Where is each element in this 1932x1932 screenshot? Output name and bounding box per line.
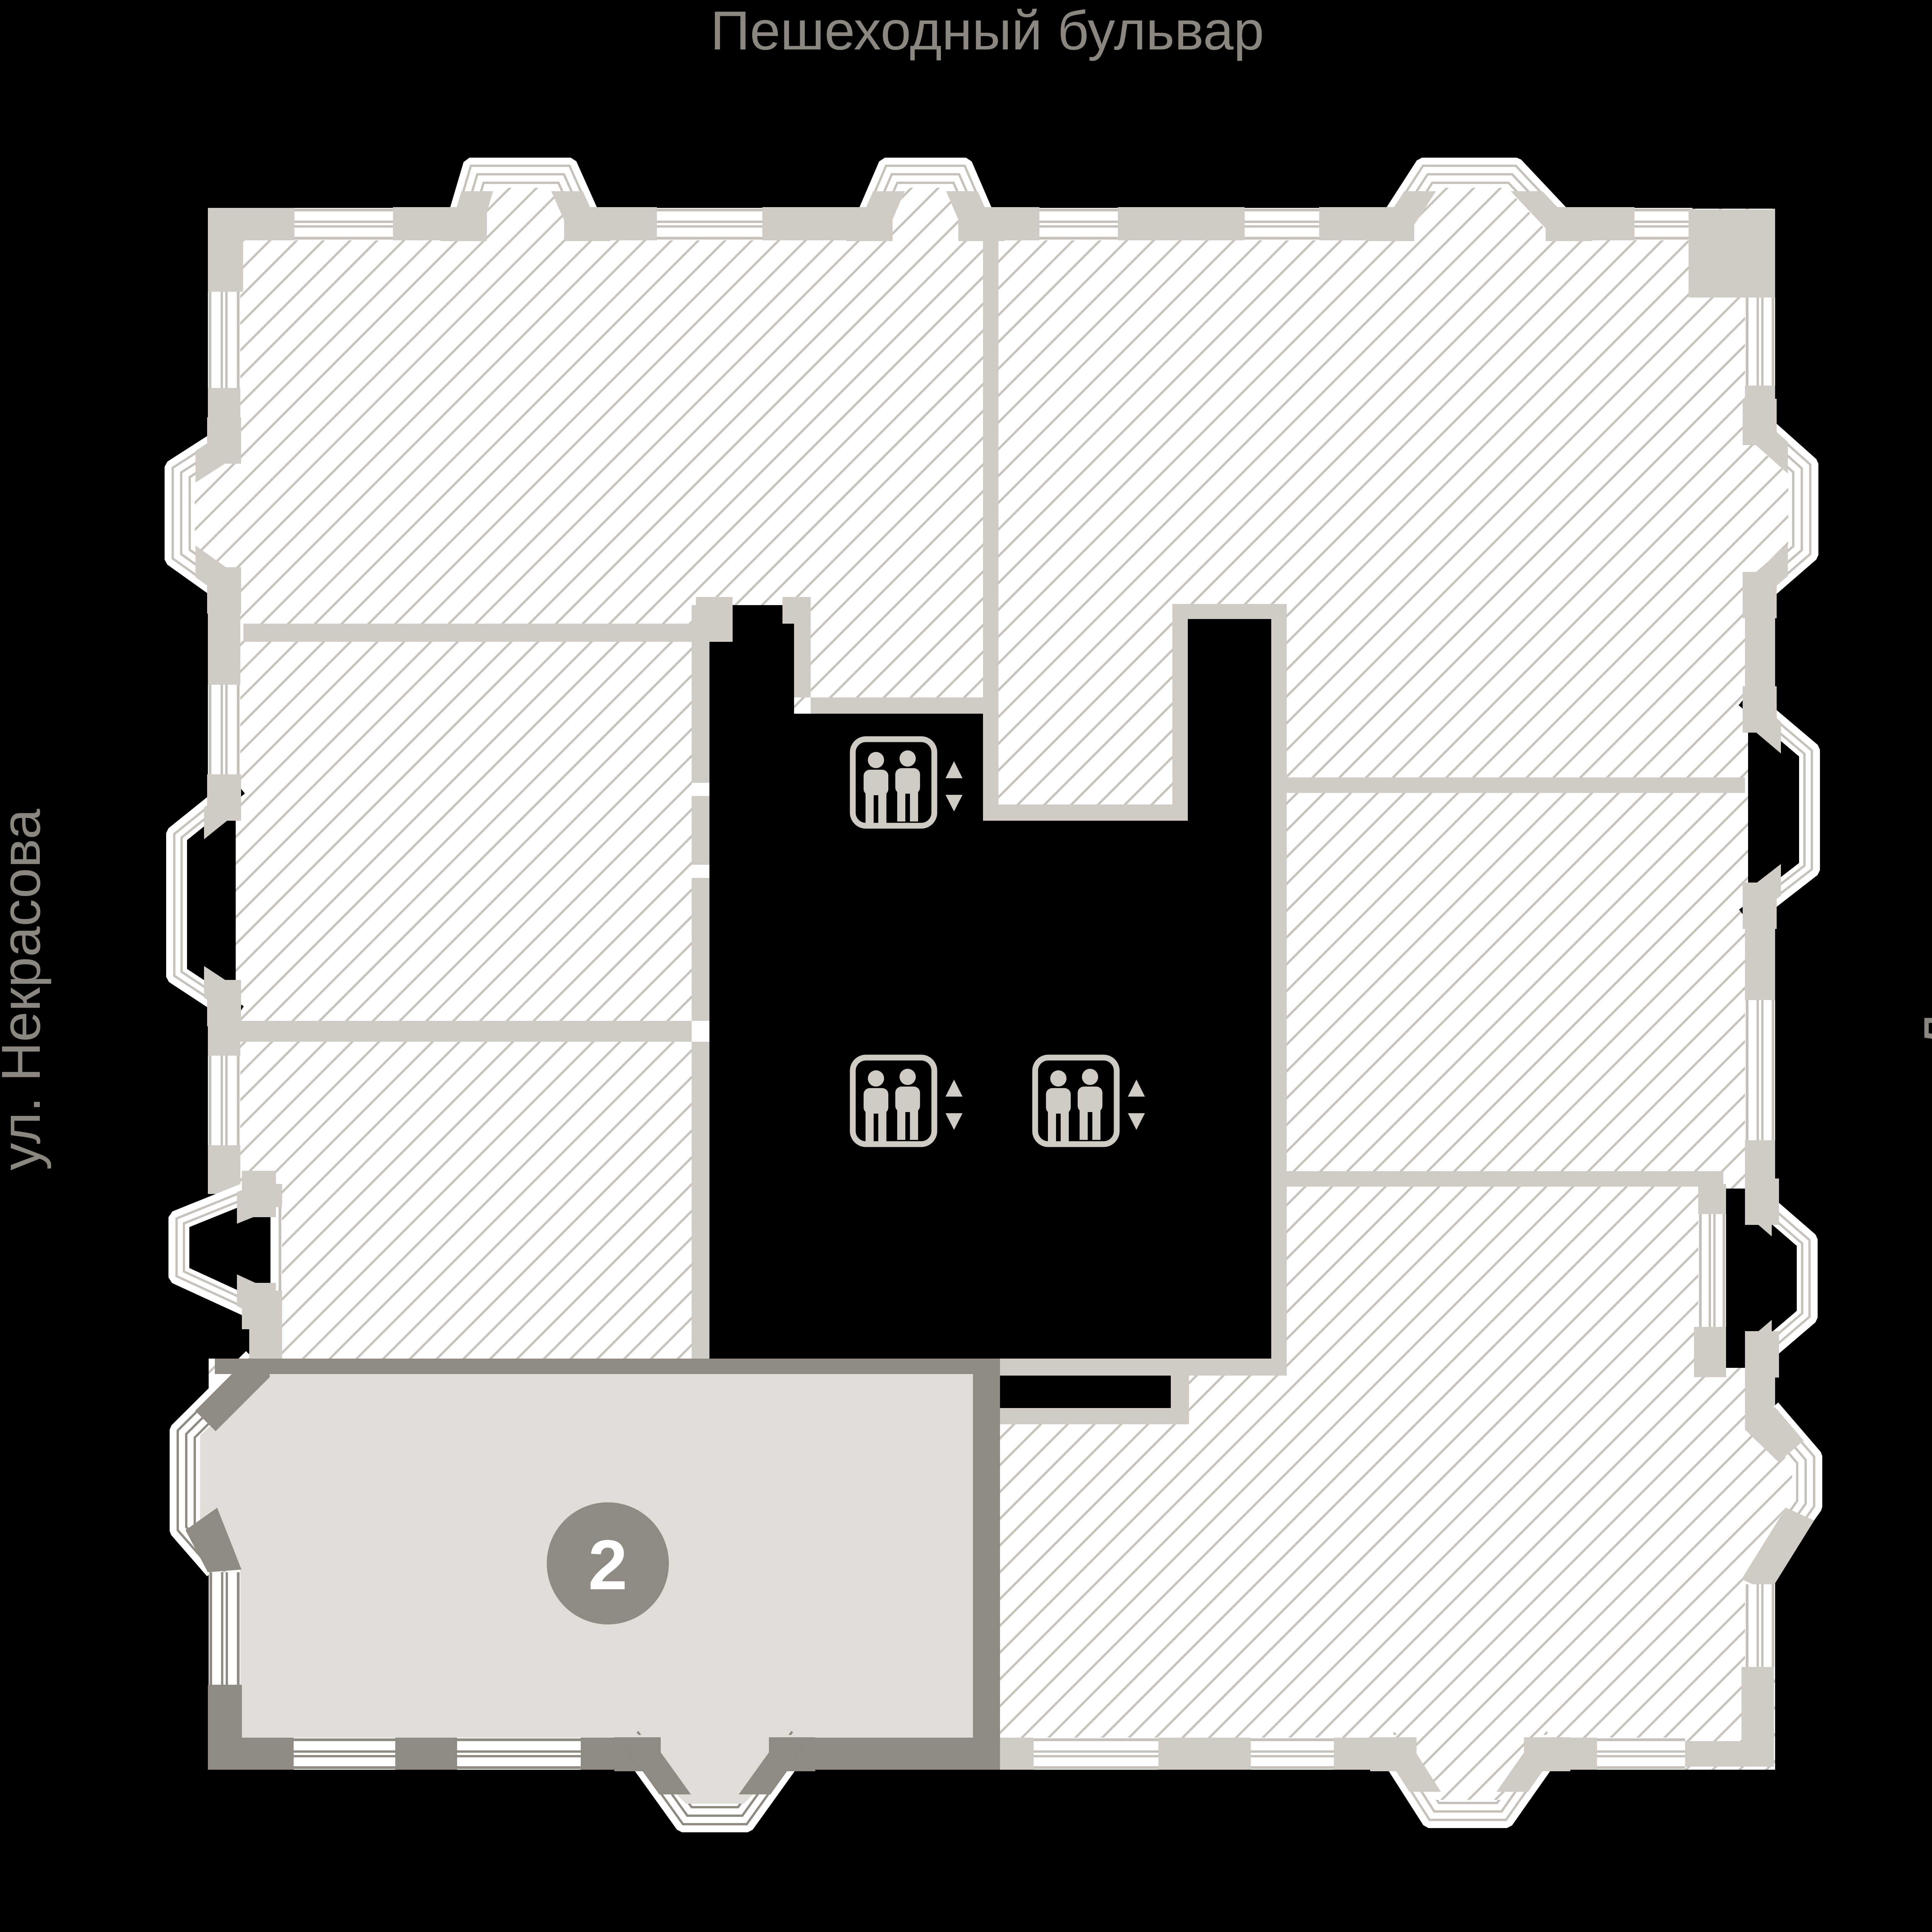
svg-text:Пешеходный бульвар: Пешеходный бульвар bbox=[711, 0, 1264, 61]
svg-text:Двор: Двор bbox=[1912, 921, 1932, 1050]
svg-text:ул. Некрасова: ул. Некрасова bbox=[0, 809, 52, 1170]
svg-text:2: 2 bbox=[588, 1525, 628, 1604]
svg-text:ул. Печёрская: ул. Печёрская bbox=[789, 1923, 1169, 1932]
